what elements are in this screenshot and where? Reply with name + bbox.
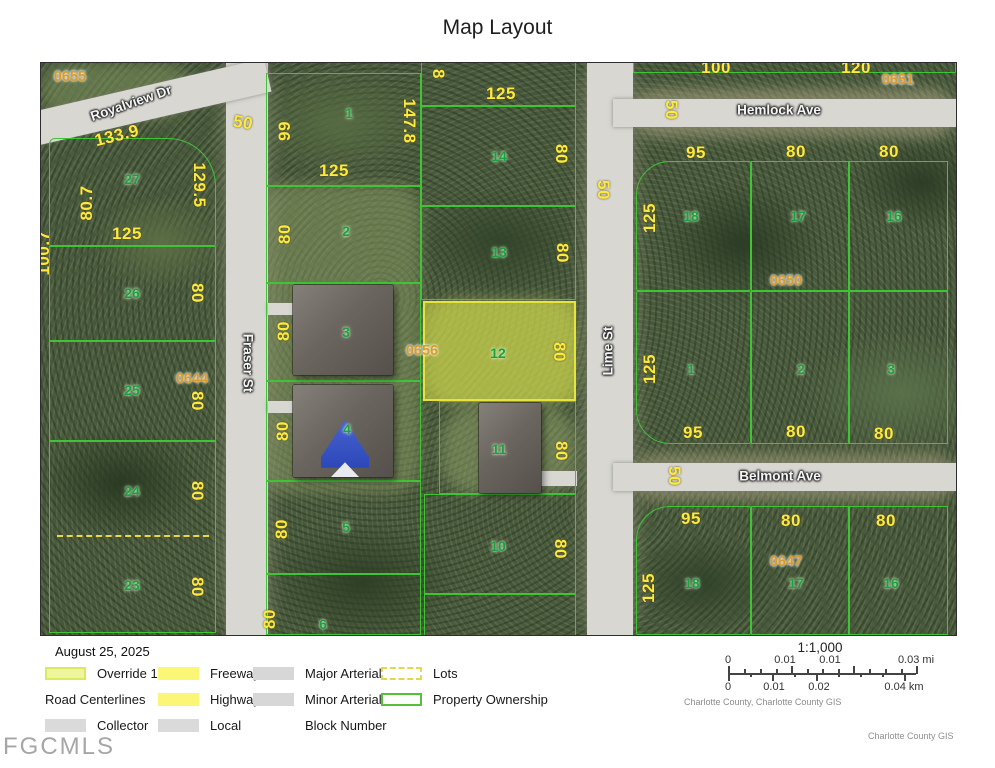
dimension-label: 125 <box>319 161 349 181</box>
block-number: 0644 <box>176 371 208 387</box>
dimension-label: 95 <box>686 143 706 163</box>
lot-number: 17 <box>788 575 804 591</box>
legend-item: Highway <box>158 691 253 707</box>
page-title: Map Layout <box>0 16 995 40</box>
dimension-label: 80 <box>187 577 207 597</box>
scale-tick <box>728 673 730 681</box>
block-number: 0650 <box>770 273 802 289</box>
dimension-label: 80 <box>551 144 571 164</box>
scale-tick <box>853 666 855 674</box>
block-number: 0647 <box>770 554 802 570</box>
scale-km-label: 0 <box>725 681 731 693</box>
scale-tick <box>816 673 818 681</box>
dimension-label: 80 <box>874 424 894 444</box>
dimension-label: 125 <box>639 573 659 603</box>
scale-tick <box>807 669 809 674</box>
lots-swatch <box>381 667 422 680</box>
legend-item: Freeway <box>158 665 253 681</box>
dimension-label: 95 <box>681 509 701 529</box>
legend-label: Local <box>210 718 241 733</box>
parcel-outline <box>751 161 849 291</box>
dimension-label: 147.8 <box>399 98 419 143</box>
dimension-label: 129.5 <box>189 162 209 207</box>
legend-label: Lots <box>433 666 458 681</box>
lot-number: 2 <box>342 223 350 239</box>
lot-number: 2 <box>797 361 805 377</box>
property-ownership-swatch <box>381 693 422 706</box>
legend-label: Collector <box>97 718 148 733</box>
legend-item: Lots <box>381 665 556 681</box>
scale-mi-label: 0.01 <box>819 654 840 666</box>
dimension-label: 80 <box>275 224 295 244</box>
lot-number: 18 <box>684 575 700 591</box>
lot-number: 17 <box>790 208 806 224</box>
dimension-label: 80 <box>273 421 293 441</box>
scale-tick <box>794 673 796 677</box>
dimension-label: 99 <box>275 121 295 141</box>
lot-number: 12 <box>490 345 506 361</box>
dimension-label: 50 <box>231 111 254 134</box>
dimension-label: 8 <box>428 69 448 79</box>
dimension-label: 80 <box>274 321 294 341</box>
dimension-label: 80 <box>187 283 207 303</box>
scale-tick <box>822 669 824 674</box>
lot-number: 1 <box>687 361 695 377</box>
house-roof <box>479 403 541 493</box>
street-name: Lime St <box>601 327 616 376</box>
scale-tick <box>776 669 778 674</box>
lot-number: 3 <box>887 361 895 377</box>
dimension-label: 80.7 <box>77 185 97 220</box>
dimension-label: 95 <box>683 423 703 443</box>
scale-tick <box>744 669 746 674</box>
dimension-label: 80 <box>876 511 896 531</box>
street-name: Fraser St <box>241 334 256 393</box>
lot-number: 26 <box>124 285 140 301</box>
legend-label: Property Ownership <box>433 692 548 707</box>
dimension-label: 80 <box>187 481 207 501</box>
legend-item: Block Number <box>253 717 381 733</box>
freeway-swatch <box>158 667 199 680</box>
dimension-label: 100 <box>701 62 731 78</box>
parcel-outline <box>424 594 576 636</box>
legend-item: Override 1 <box>45 665 158 681</box>
parcel-outline <box>849 161 948 291</box>
legend: Override 1FreewayMajor ArterialLotsRoad … <box>45 665 556 733</box>
legend-item: Minor Arterial <box>253 691 381 707</box>
map-canvas[interactable]: 133.980.7129.512580808080100.75099125147… <box>40 62 957 636</box>
scale-bar: 1:1,000 00.010.010.03 mi00.010.020.04 km… <box>690 640 990 712</box>
parcel-outline <box>849 506 948 635</box>
lot-number: 24 <box>124 483 140 499</box>
block-number: 0655 <box>54 69 86 85</box>
legend-item: Collector <box>45 717 158 733</box>
legend-item: Property Ownership <box>381 691 556 707</box>
dimension-label: 80 <box>781 511 801 531</box>
collector-swatch <box>45 719 86 732</box>
dimension-label: 50 <box>661 100 681 120</box>
lot-number: 23 <box>124 577 140 593</box>
dimension-label: 80 <box>786 142 806 162</box>
attribution: Charlotte County, Charlotte County GIS <box>684 697 841 707</box>
lot-number: 27 <box>124 171 140 187</box>
dimension-label: 80 <box>272 519 292 539</box>
watermark: FGCMLS <box>3 733 115 761</box>
scale-tick <box>869 669 871 674</box>
scale-tick <box>791 666 793 674</box>
parcel-outline <box>49 441 216 633</box>
lot-number: 5 <box>342 519 350 535</box>
map-date: August 25, 2025 <box>55 644 150 659</box>
lot-number: 1 <box>345 105 353 121</box>
block-number: 0656 <box>406 343 438 359</box>
scale-tick <box>882 673 884 677</box>
scale-km-label: 0.02 <box>808 681 829 693</box>
page: Map Layout 133.980.7129.512580808080100.… <box>0 0 995 768</box>
dimension-label: 80 <box>786 422 806 442</box>
scale-mi-label: 0 <box>725 654 731 666</box>
scale-tick <box>904 673 906 681</box>
lot-number: 14 <box>491 148 507 164</box>
lot-number: 11 <box>492 441 507 457</box>
scale-mi-label: 0.01 <box>774 654 795 666</box>
dimension-label: 125 <box>640 203 660 233</box>
lot-number: 3 <box>342 324 350 340</box>
dimension-label: 80 <box>549 342 569 362</box>
dimension-label: 80 <box>187 391 207 411</box>
dimension-label: 125 <box>112 224 142 244</box>
legend-label: Major Arterial <box>305 666 382 681</box>
scale-tick <box>838 673 840 677</box>
dimension-label: 80 <box>550 539 570 559</box>
lot-number: 18 <box>683 208 699 224</box>
minor-arterial-swatch <box>253 693 294 706</box>
legend-label: Minor Arterial <box>305 692 382 707</box>
gis-credit: Charlotte County GIS <box>868 731 954 741</box>
scale-tick <box>772 673 774 681</box>
street-name: Hemlock Ave <box>737 103 821 118</box>
scale-mi-label: 0.03 mi <box>898 654 934 666</box>
dimension-label: 120 <box>841 62 871 78</box>
scale-ratio: 1:1,000 <box>724 640 916 655</box>
block-number: 0651 <box>882 72 914 88</box>
dimension-label: 80 <box>551 441 571 461</box>
dimension-label: 50 <box>664 466 684 486</box>
override-1-swatch <box>45 667 86 680</box>
lot-number: 16 <box>883 575 899 591</box>
dimension-label: 50 <box>593 180 613 200</box>
legend-item <box>381 717 556 733</box>
legend-item: Local <box>158 717 253 733</box>
dimension-label: 80 <box>879 142 899 162</box>
legend-label: Block Number <box>305 718 387 733</box>
lot-number: 4 <box>343 421 351 437</box>
parcel-outline <box>849 291 948 444</box>
dimension-label: 80 <box>552 243 572 263</box>
lot-number: 6 <box>319 616 327 632</box>
legend-label: Road Centerlines <box>45 692 145 707</box>
legend-item: Major Arterial <box>253 665 381 681</box>
legend-item: Road Centerlines <box>45 691 158 707</box>
scale-km-label: 0.01 <box>763 681 784 693</box>
scale-tick <box>901 669 903 674</box>
scale-tick <box>760 669 762 674</box>
scale-tick <box>916 666 918 674</box>
street-name: Belmont Ave <box>739 469 821 484</box>
major-arterial-swatch <box>253 667 294 680</box>
dimension-label: 125 <box>486 84 516 104</box>
scale-tick <box>750 673 752 677</box>
scale-km-label: 0.04 km <box>884 681 923 693</box>
lot-number: 16 <box>886 208 902 224</box>
dimension-label: 80 <box>260 609 280 629</box>
parcel-outline <box>266 574 421 635</box>
lot-number: 10 <box>490 538 506 554</box>
dimension-label: 125 <box>640 354 660 384</box>
scale-tick <box>860 673 862 677</box>
highway-swatch <box>158 693 199 706</box>
dimension-label: 100.7 <box>40 230 54 275</box>
platted-lot-dashed-line <box>57 535 209 537</box>
scale-tick <box>885 669 887 674</box>
lot-number: 25 <box>124 382 140 398</box>
lot-number: 13 <box>491 244 507 260</box>
local-swatch <box>158 719 199 732</box>
legend-label: Override 1 <box>97 666 158 681</box>
